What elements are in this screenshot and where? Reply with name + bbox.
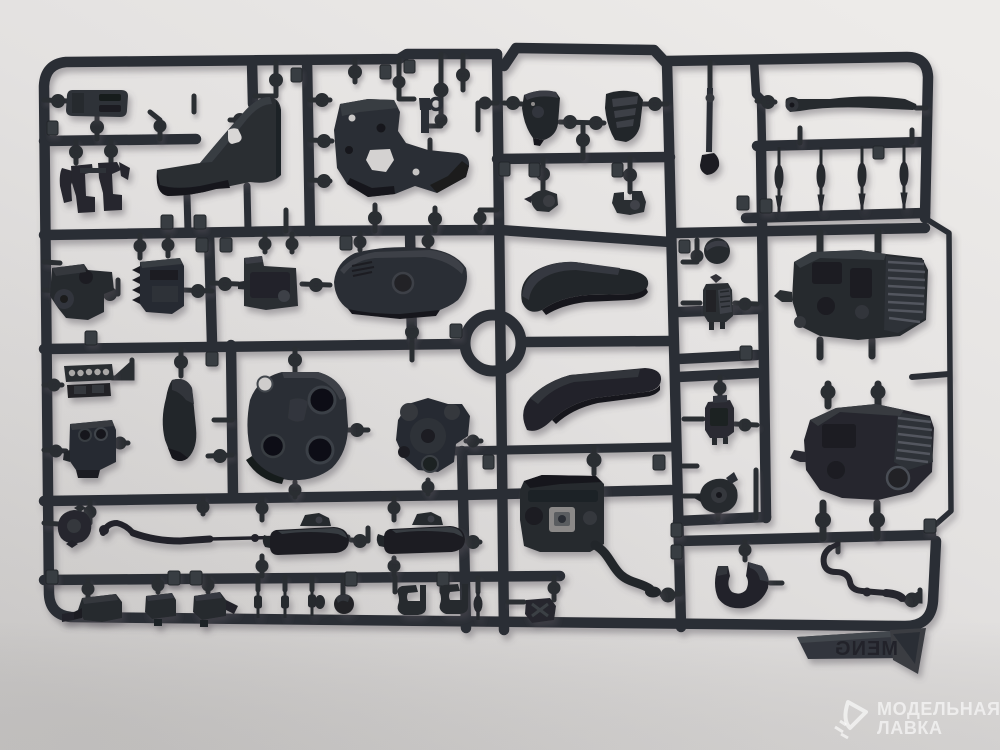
svg-text:MENG: MENG (834, 638, 898, 660)
svg-text:ЛАВКА: ЛАВКА (877, 718, 943, 738)
svg-text:МОДЕЛЬНАЯ: МОДЕЛЬНАЯ (877, 699, 1000, 719)
